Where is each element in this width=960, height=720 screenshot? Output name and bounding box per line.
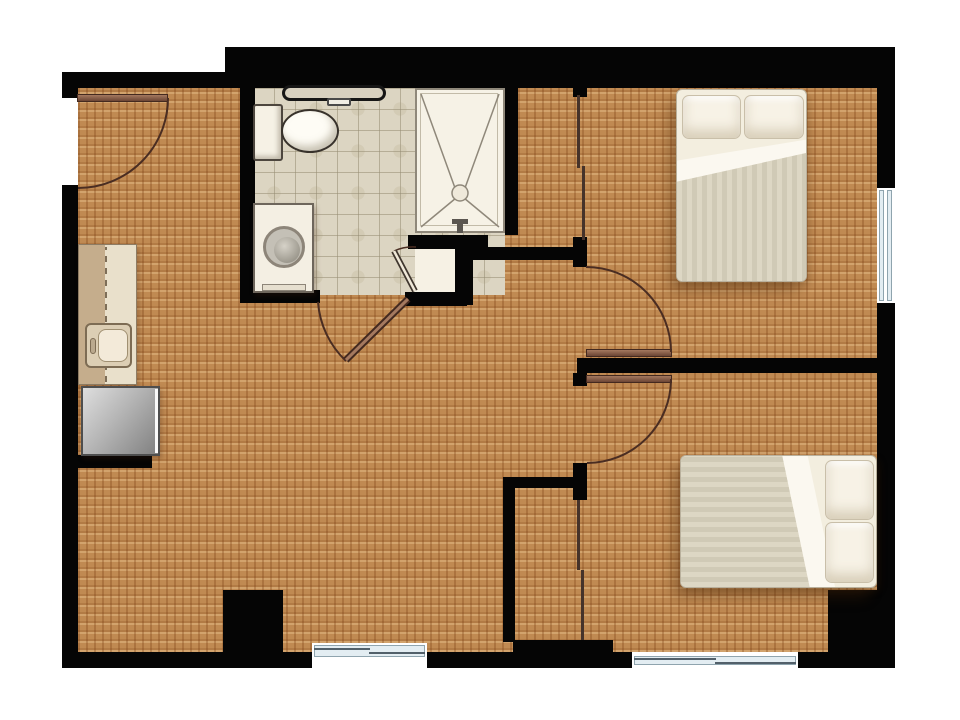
- linen-closet-door-swing-arc: [394, 247, 416, 251]
- linen-closet-door-leaf-face: [394, 251, 415, 291]
- floor-plan-canvas: [0, 0, 960, 720]
- shower-drain: [452, 185, 468, 201]
- bedroom-1-door-swing-arc: [586, 267, 671, 352]
- bathroom-door-swing-arc: [318, 302, 346, 361]
- entry-door-swing-arc: [78, 98, 168, 188]
- shower-threshold-lines: [421, 94, 499, 227]
- shower-fixture: [452, 219, 468, 233]
- plan-linework-overlay: [0, 0, 960, 720]
- bathroom-door-leaf-face: [346, 299, 408, 360]
- bedroom-2-door-swing-arc: [587, 379, 671, 463]
